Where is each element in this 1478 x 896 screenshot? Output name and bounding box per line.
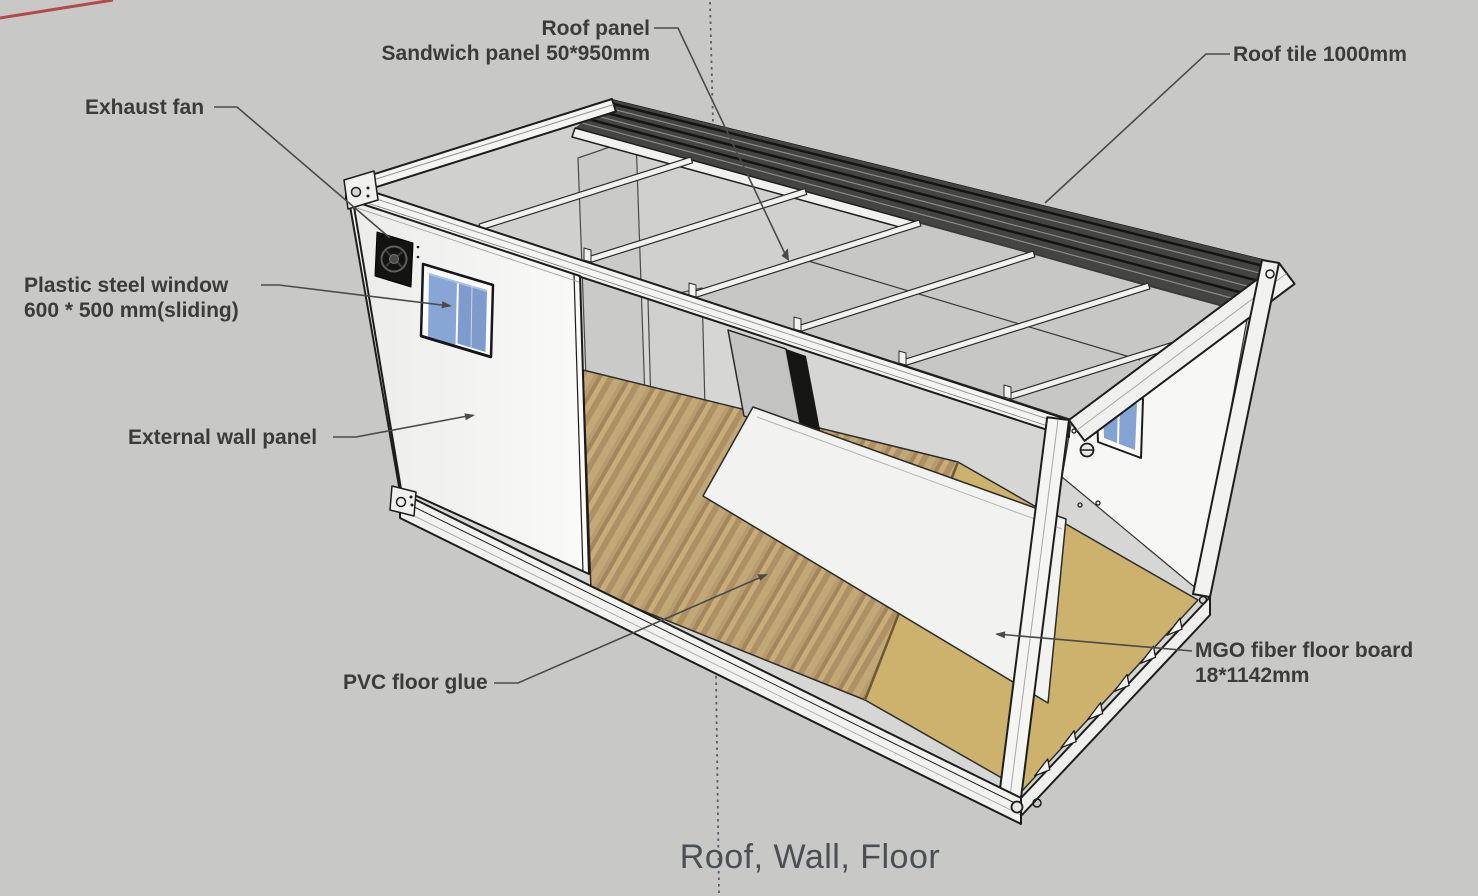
- label-roof-panel-line1: Roof panel: [300, 16, 650, 41]
- label-window-line2: 600 * 500 mm(sliding): [24, 298, 239, 323]
- label-mgo-line2: 18*1142mm: [1195, 663, 1413, 688]
- container-house-diagram: Roof panel Sandwich panel 50*950mm Roof …: [0, 0, 1478, 896]
- label-roof-tile-line1: Roof tile 1000mm: [1233, 42, 1407, 67]
- page-title: Roof, Wall, Floor: [600, 838, 1020, 877]
- label-mgo-line1: MGO fiber floor board: [1195, 638, 1413, 663]
- label-window-line1: Plastic steel window: [24, 273, 239, 298]
- label-external-wall-panel: External wall panel: [128, 425, 317, 450]
- label-roof-tile: Roof tile 1000mm: [1233, 42, 1407, 67]
- label-wall-line1: External wall panel: [128, 425, 317, 450]
- label-pvc-floor-glue: PVC floor glue: [343, 670, 488, 695]
- label-pvc-line1: PVC floor glue: [343, 670, 488, 695]
- label-mgo-floor-board: MGO fiber floor board 18*1142mm: [1195, 638, 1413, 688]
- label-exhaust-fan-line1: Exhaust fan: [85, 95, 204, 120]
- label-plastic-steel-window: Plastic steel window 600 * 500 mm(slidin…: [24, 273, 239, 323]
- label-exhaust-fan: Exhaust fan: [85, 95, 204, 120]
- label-roof-panel: Roof panel Sandwich panel 50*950mm: [300, 16, 650, 66]
- label-roof-panel-line2: Sandwich panel 50*950mm: [300, 41, 650, 66]
